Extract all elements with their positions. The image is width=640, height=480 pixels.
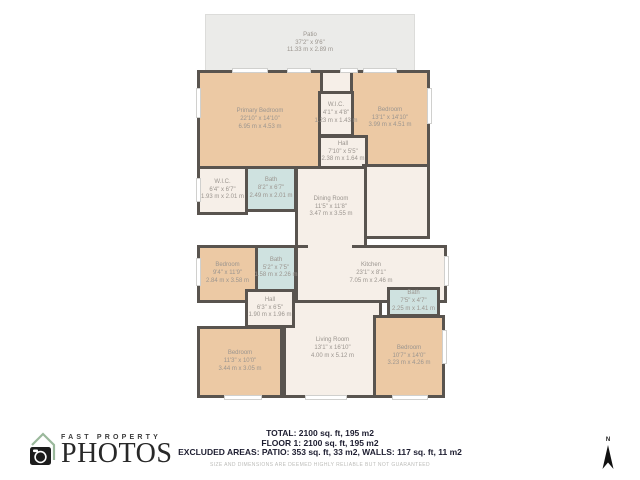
north-compass: N	[599, 437, 617, 476]
window-marker	[196, 88, 201, 118]
room-dims-imperial: 7'5" x 4'7"	[400, 298, 426, 306]
room-dims-imperial: 7'10" x 5'5"	[328, 149, 358, 157]
room-name: Patio	[303, 32, 317, 40]
window-marker	[224, 395, 262, 400]
room-label: Kitchen 23'1" x 8'1" 7.05 m x 2.46 m	[349, 262, 392, 285]
room-dims-imperial: 13'1" x 16'10"	[314, 345, 350, 353]
room-name: Bath	[270, 257, 282, 265]
room-label: Bedroom 9'4" x 11'9" 2.84 m x 3.58 m	[206, 262, 249, 285]
room-label: Primary Bedroom 22'10" x 14'10" 6.95 m x…	[237, 108, 284, 131]
room-dims-metric: 1.90 m x 1.96 m	[248, 312, 291, 320]
room-bath-right: Bath 7'5" x 4'7" 2.25 m x 1.41 m	[387, 287, 440, 317]
room-name: Bedroom	[397, 345, 421, 353]
room-name: Bath	[407, 290, 419, 298]
floorplan-page: Patio 37'2" x 9'6" 11.33 m x 2.89 m Prim…	[0, 0, 640, 480]
room-dims-imperial: 23'1" x 8'1"	[356, 270, 386, 278]
brand-logo: FAST PROPERTY PHOTOS	[29, 430, 172, 468]
room-name: Living Room	[316, 337, 349, 345]
logo-line2: PHOTOS	[61, 441, 172, 466]
room-bath-mid: Bath 5'2" x 7'5" 1.58 m x 2.26 m	[255, 245, 297, 292]
room-name: Hall	[338, 141, 348, 149]
room-name: W.I.C.	[214, 179, 230, 187]
window-marker	[305, 395, 347, 400]
window-marker	[232, 68, 268, 73]
window-marker	[196, 178, 201, 202]
window-marker	[287, 68, 311, 73]
room-dims-metric: 11.33 m x 2.89 m	[287, 47, 333, 55]
room-name: Primary Bedroom	[237, 108, 284, 116]
room-dims-imperial: 37'2" x 9'6"	[295, 40, 325, 48]
door-opening	[340, 68, 358, 73]
room-dims-metric: 1.23 m x 1.43 m	[314, 118, 357, 126]
room-dims-imperial: 6'3" x 6'5"	[257, 305, 283, 313]
room-dims-imperial: 9'4" x 11'9"	[213, 270, 242, 278]
room-bath-top: Bath 8'2" x 6'7" 2.49 m x 2.01 m	[245, 166, 297, 212]
room-dims-imperial: 10'7" x 14'0"	[393, 353, 426, 361]
room-label: Living Room 13'1" x 16'10" 4.00 m x 5.12…	[311, 337, 354, 360]
room-dims-metric: 7.05 m x 2.46 m	[349, 278, 392, 286]
north-arrow-icon	[600, 445, 616, 471]
room-dims-metric: 1.58 m x 2.26 m	[254, 272, 297, 280]
room-label: Bath 5'2" x 7'5" 1.58 m x 2.26 m	[254, 257, 297, 280]
logo-text: FAST PROPERTY PHOTOS	[61, 430, 172, 466]
room-label: W.I.C. 6'4" x 6'7" 1.93 m x 2.01 m	[201, 179, 244, 202]
room-dims-metric: 4.00 m x 5.12 m	[311, 353, 354, 361]
room-name: Bath	[265, 177, 277, 185]
room-dims-metric: 3.47 m x 3.55 m	[309, 211, 352, 219]
room-name: Kitchen	[361, 262, 381, 270]
camera-house-icon	[29, 430, 59, 468]
room-living-room: Living Room 13'1" x 16'10" 4.00 m x 5.12…	[283, 300, 382, 398]
room-dims-imperial: 8'2" x 6'7"	[258, 185, 284, 193]
room-dining-room: Dining Room 11'5" x 11'8" 3.47 m x 3.55 …	[295, 166, 367, 249]
room-dims-imperial: 5'2" x 7'5"	[263, 265, 289, 273]
window-marker	[427, 88, 432, 124]
room-dims-metric: 2.38 m x 1.64 m	[321, 156, 364, 164]
room-wic-left: W.I.C. 6'4" x 6'7" 1.93 m x 2.01 m	[197, 166, 248, 215]
room-dims-metric: 3.23 m x 4.26 m	[387, 360, 430, 368]
room-hall-lower: Hall 6'3" x 6'5" 1.90 m x 1.96 m	[245, 289, 295, 328]
room-dims-imperial: 22'10" x 14'10"	[240, 116, 280, 124]
room-dims-metric: 3.44 m x 3.05 m	[218, 366, 261, 374]
room-dims-metric: 6.95 m x 4.53 m	[238, 124, 281, 132]
room-bedroom-bottom-right: Bedroom 10'7" x 14'0" 3.23 m x 4.26 m	[373, 315, 445, 398]
window-marker	[442, 330, 447, 364]
room-label: Hall 6'3" x 6'5" 1.90 m x 1.96 m	[248, 297, 291, 320]
room-wic-top: W.I.C. 4'1" x 4'8" 1.23 m x 1.43 m	[318, 91, 354, 137]
room-dims-imperial: 13'1" x 14'10"	[372, 115, 408, 123]
room-dims-imperial: 6'4" x 6'7"	[209, 187, 235, 195]
room-label: Bedroom 11'3" x 10'0" 3.44 m x 3.05 m	[218, 350, 261, 373]
room-label: W.I.C. 4'1" x 4'8" 1.23 m x 1.43 m	[314, 102, 357, 125]
room-label: Bedroom 10'7" x 14'0" 3.23 m x 4.26 m	[387, 345, 430, 368]
room-dims-metric: 2.84 m x 3.58 m	[206, 278, 249, 286]
room-label: Patio 37'2" x 9'6" 11.33 m x 2.89 m	[287, 32, 333, 55]
window-marker	[363, 68, 397, 73]
room-bedroom-bottom-left: Bedroom 11'3" x 10'0" 3.44 m x 3.05 m	[197, 326, 283, 398]
room-label: Dining Room 11'5" x 11'8" 3.47 m x 3.55 …	[309, 196, 352, 219]
room-name: Bedroom	[215, 262, 239, 270]
room-dims-imperial: 4'1" x 4'8"	[323, 110, 349, 118]
door-opening	[308, 243, 352, 250]
room-dims-metric: 3.99 m x 4.51 m	[368, 122, 411, 130]
room-dims-imperial: 11'3" x 10'0"	[224, 358, 256, 366]
window-marker	[444, 256, 449, 286]
room-label: Bedroom 13'1" x 14'10" 3.99 m x 4.51 m	[368, 107, 411, 130]
room-dims-metric: 1.93 m x 2.01 m	[201, 194, 244, 202]
room-dims-imperial: 11'5" x 11'8"	[315, 204, 347, 212]
room-name: Hall	[265, 297, 275, 305]
room-label: Bath 7'5" x 4'7" 2.25 m x 1.41 m	[392, 290, 435, 313]
window-marker	[392, 395, 428, 400]
room-dims-metric: 2.25 m x 1.41 m	[392, 306, 435, 314]
room-patio: Patio 37'2" x 9'6" 11.33 m x 2.89 m	[205, 14, 415, 73]
room-name: Dining Room	[314, 196, 349, 204]
room-hall-top: Hall 7'10" x 5'5" 2.38 m x 1.64 m	[318, 135, 368, 170]
north-label: N	[599, 437, 617, 444]
room-label: Hall 7'10" x 5'5" 2.38 m x 1.64 m	[321, 141, 364, 164]
window-marker	[196, 258, 201, 286]
hallway-area	[362, 164, 430, 239]
room-dims-metric: 2.49 m x 2.01 m	[249, 193, 292, 201]
room-name: Bedroom	[228, 350, 252, 358]
room-label: Bath 8'2" x 6'7" 2.49 m x 2.01 m	[249, 177, 292, 200]
room-name: W.I.C.	[328, 102, 344, 110]
room-primary-bedroom: Primary Bedroom 22'10" x 14'10" 6.95 m x…	[197, 70, 323, 170]
room-name: Bedroom	[378, 107, 402, 115]
